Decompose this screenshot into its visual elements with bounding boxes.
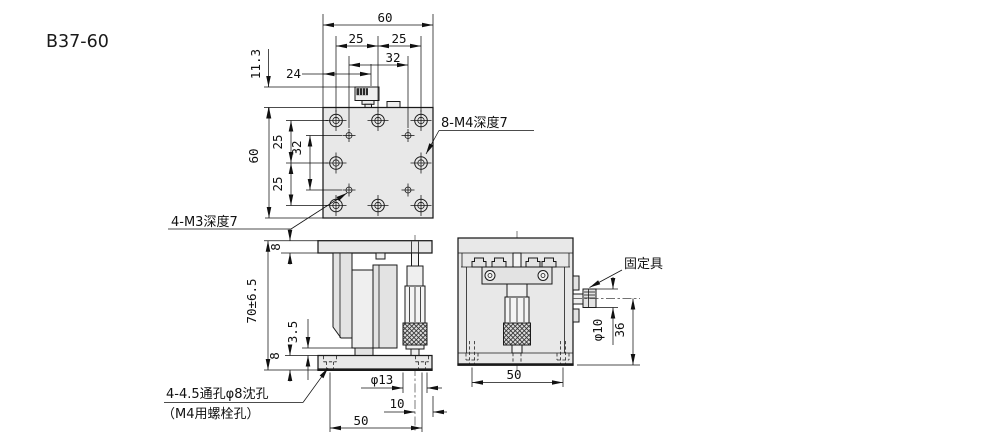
spindle-pass [513, 253, 521, 267]
callout-counterbore: 4-4.5通孔φ8沈孔 （M4用螺栓孔） [162, 368, 328, 422]
top-view: 60 25 25 32 24 11.3 60 25 32 25 8-M4深度7 … [168, 10, 534, 230]
clamp-knob-top [355, 87, 400, 108]
dim-left-height: 60 [246, 148, 261, 163]
dim-span-v-32: 32 [289, 140, 304, 155]
dim-offset-10: 10 [389, 396, 404, 411]
label-counterbore-line1: 4-4.5通孔φ8沈孔 [166, 387, 268, 402]
dim-pitch-left: 25 [348, 31, 363, 46]
dim-clamp-height: 36 [612, 322, 627, 337]
dim-top-width: 60 [377, 10, 392, 25]
part-number: B37-60 [46, 32, 109, 52]
callout-clamp: 固定具 [590, 257, 664, 288]
bracket [482, 267, 552, 284]
dim-clamp-dia: φ10 [590, 319, 605, 342]
front-base-plate [318, 356, 432, 371]
front-view: 8 70±6.5 3.5 8 φ13 10 50 4-4.5通孔φ8沈孔 （M4… [162, 230, 447, 434]
knurled-thimble [403, 323, 427, 345]
front-top-plate [318, 241, 432, 253]
micrometer-side [504, 284, 531, 353]
front-body [333, 253, 397, 356]
dim-pitch-lower: 25 [270, 176, 285, 191]
dim-knob-height: 11.3 [248, 49, 263, 79]
label-4-m3: 4-M3深度7 [171, 214, 238, 230]
dim-pitch-right: 25 [391, 31, 406, 46]
dim-thimble-dia: φ13 [371, 372, 394, 387]
engineering-drawing: B37-60 [0, 0, 1000, 445]
micrometer-front [403, 253, 427, 356]
label-counterbore-line2: （M4用螺栓孔） [162, 407, 260, 422]
dim-hole-pitch-front: 50 [353, 413, 368, 428]
dim-pitch-upper: 25 [270, 134, 285, 149]
dim-span-32: 32 [385, 50, 400, 65]
drawing-canvas: B37-60 [0, 0, 1000, 445]
callout-4-m3: 4-M3深度7 [168, 193, 347, 230]
callout-8-m4: 8-M4深度7 [426, 115, 534, 154]
label-clamp: 固定具 [624, 257, 663, 272]
dim-hole-pitch-side: 50 [506, 367, 521, 382]
label-8-m4: 8-M4深度7 [441, 115, 508, 131]
dim-plate-thickness: 8 [268, 243, 283, 251]
clamp-knob-side [573, 276, 596, 322]
dim-base-thickness: 8 [267, 352, 282, 360]
side-view: 固定具 φ10 36 50 [457, 231, 663, 387]
dim-total-height: 70±6.5 [244, 278, 259, 323]
dim-offset-24: 24 [286, 66, 301, 81]
dim-gap: 3.5 [285, 321, 300, 344]
